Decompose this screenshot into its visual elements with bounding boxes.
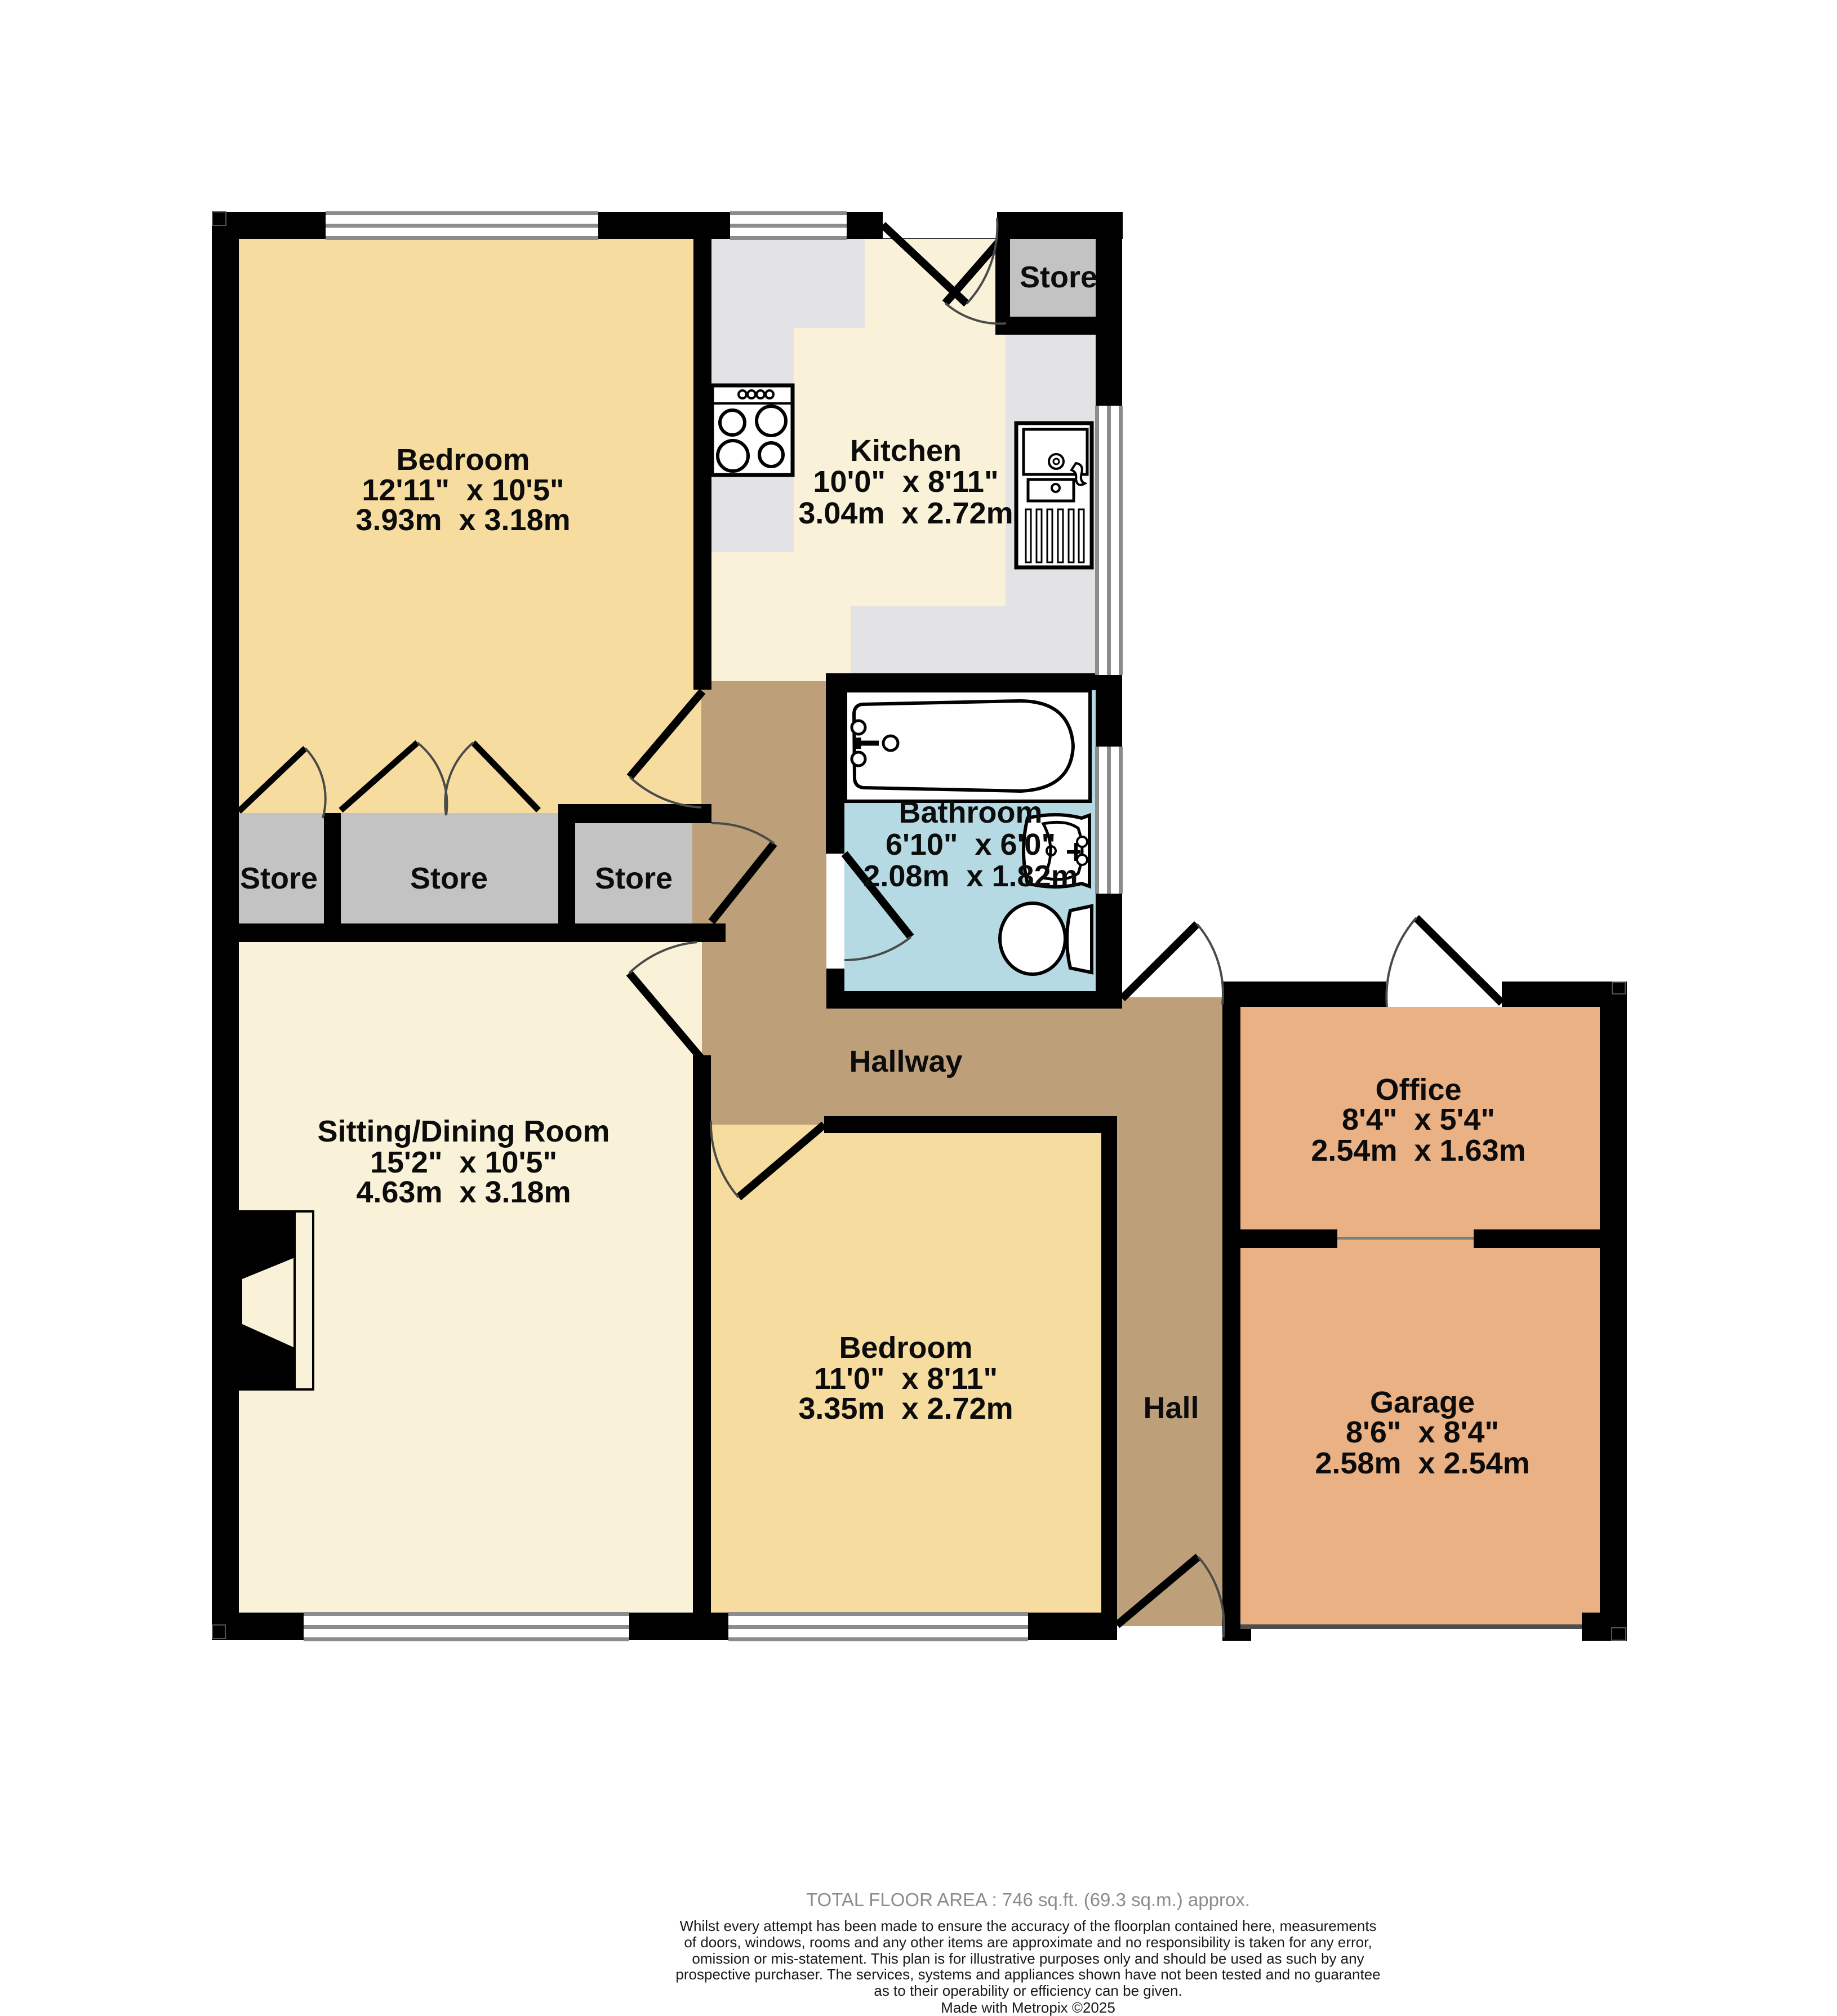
svg-text:Store: Store (1020, 260, 1097, 294)
svg-text:Office: Office (1375, 1073, 1461, 1107)
svg-text:2.54m x 1.63m: 2.54m x 1.63m (1311, 1134, 1525, 1167)
svg-text:TOTAL FLOOR AREA : 746 sq.ft.: TOTAL FLOOR AREA : 746 sq.ft. (69.3 sq.m… (806, 1889, 1250, 1910)
svg-text:Whilst every attempt has been: Whilst every attempt has been made to en… (679, 1917, 1376, 1934)
svg-text:8'6" x 8'4": 8'6" x 8'4" (1346, 1415, 1499, 1449)
svg-text:15'2" x 10'5": 15'2" x 10'5" (370, 1145, 557, 1179)
svg-text:3.93m x 3.18m: 3.93m x 3.18m (355, 503, 570, 537)
svg-text:2.08m x 1.82m: 2.08m x 1.82m (863, 859, 1078, 893)
svg-text:of doors, windows, rooms and a: of doors, windows, rooms and any other i… (684, 1934, 1372, 1951)
svg-text:Kitchen: Kitchen (850, 434, 962, 468)
svg-text:11'0" x 8'11": 11'0" x 8'11" (814, 1362, 998, 1396)
svg-text:8'4" x 5'4": 8'4" x 5'4" (1342, 1103, 1495, 1136)
svg-text:Hall: Hall (1143, 1391, 1199, 1425)
svg-text:as to their operability or eff: as to their operability or efficiency ca… (874, 1982, 1182, 1999)
svg-text:Sitting/Dining Room: Sitting/Dining Room (318, 1114, 610, 1148)
svg-text:3.04m x 2.72m: 3.04m x 2.72m (798, 496, 1013, 530)
svg-text:Bedroom: Bedroom (396, 443, 530, 477)
svg-text:Store: Store (240, 862, 318, 895)
svg-text:Bathroom: Bathroom (899, 796, 1043, 829)
svg-text:Bedroom: Bedroom (839, 1331, 972, 1365)
svg-text:Garage: Garage (1370, 1386, 1475, 1419)
svg-text:omission or mis-statement. Thi: omission or mis-statement. This plan is … (692, 1950, 1364, 1967)
svg-text:prospective purchaser. The ser: prospective purchaser. The services, sys… (675, 1966, 1380, 1983)
svg-text:2.58m x 2.54m: 2.58m x 2.54m (1315, 1446, 1529, 1480)
svg-text:Store: Store (595, 862, 673, 895)
svg-text:Made with Metropix ©2025: Made with Metropix ©2025 (941, 1999, 1115, 2016)
svg-text:12'11" x 10'5": 12'11" x 10'5" (362, 473, 564, 507)
svg-text:10'0" x 8'11": 10'0" x 8'11" (813, 465, 998, 499)
svg-text:Store: Store (410, 862, 488, 895)
svg-text:3.35m x 2.72m: 3.35m x 2.72m (798, 1392, 1013, 1426)
svg-text:6'10" x 6'0": 6'10" x 6'0" (886, 828, 1056, 862)
svg-text:Hallway: Hallway (849, 1045, 962, 1078)
svg-text:4.63m x 3.18m: 4.63m x 3.18m (356, 1175, 571, 1209)
